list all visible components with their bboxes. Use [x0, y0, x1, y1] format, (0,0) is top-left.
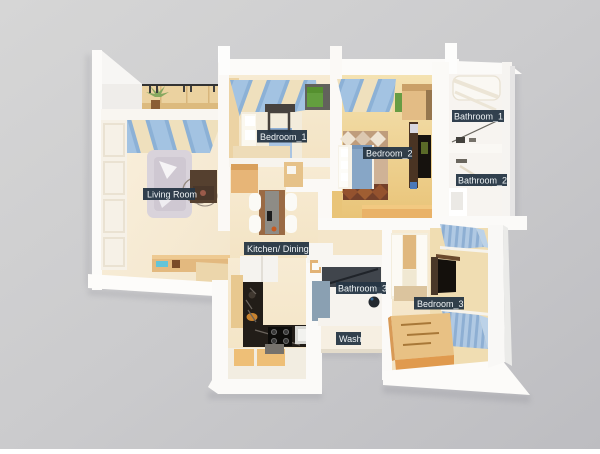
svg-text:Bathroom_2: Bathroom_2: [458, 176, 507, 186]
svg-text:Bathroom_1: Bathroom_1: [454, 112, 503, 122]
svg-text:Kitchen/ Dining: Kitchen/ Dining: [247, 244, 309, 254]
svg-text:Bathroom_3: Bathroom_3: [338, 284, 387, 294]
svg-text:Wash: Wash: [339, 334, 362, 344]
svg-text:Bedroom_1: Bedroom_1: [260, 132, 307, 142]
svg-text:Bedroom_3: Bedroom_3: [417, 299, 464, 309]
svg-text:Bedroom_2: Bedroom_2: [366, 149, 413, 159]
svg-text:Living Room: Living Room: [147, 190, 197, 200]
